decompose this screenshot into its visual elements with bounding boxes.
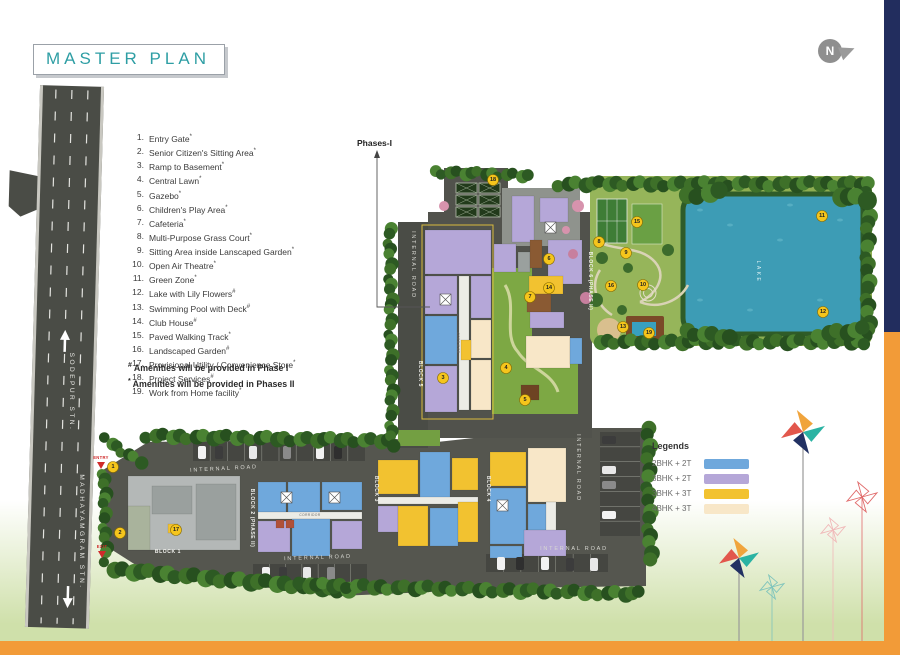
amenity-marker-3: 3 <box>438 373 449 384</box>
building-unit <box>494 244 516 272</box>
building-unit <box>530 312 564 328</box>
footnote: # Amenities will be provided in Phase I <box>128 359 294 375</box>
amenity-item: 4.Central Lawn* <box>128 173 358 187</box>
amenity-marker-1: 1 <box>108 462 119 473</box>
amenity-item: 10.Open Air Theatre* <box>128 258 358 272</box>
north-pointer-icon <box>838 42 857 61</box>
amenity-item: 8.Multi-Purpose Grass Court* <box>128 230 358 244</box>
legend-swatch <box>704 474 749 484</box>
building-unit <box>378 506 398 532</box>
lake-ripple <box>777 239 783 242</box>
parked-car <box>516 557 524 570</box>
amenity-marker-17: 17 <box>171 525 182 536</box>
amenity-item: 14.Club House# <box>128 315 358 329</box>
plan-label: EXIT <box>97 544 108 549</box>
svg-text:15: 15 <box>634 219 640 225</box>
svg-text:11: 11 <box>819 213 825 219</box>
legend-row: 3BHK + 3T <box>652 486 749 501</box>
amenity-marker-5: 5 <box>520 395 531 406</box>
tree <box>135 456 148 469</box>
blossom-tree <box>568 249 578 259</box>
building-unit <box>518 252 530 272</box>
plan-label: BLOCK 3 <box>373 476 379 502</box>
legend-swatch <box>704 504 749 514</box>
page-title: MASTER PLAN <box>46 49 210 68</box>
amenity-marker-19: 19 <box>644 328 655 339</box>
tree <box>858 338 870 350</box>
tree <box>632 585 645 598</box>
main-road <box>0 84 104 628</box>
building-unit <box>570 338 582 364</box>
compass-north: N <box>818 39 855 63</box>
lake-ripple <box>697 299 703 302</box>
svg-text:6: 6 <box>547 256 550 262</box>
svg-text:18: 18 <box>490 177 496 183</box>
entry-arrow <box>97 462 105 469</box>
blossom-tree <box>439 201 449 211</box>
pinwheel-icon <box>719 538 759 578</box>
tree <box>861 239 875 253</box>
amenity-item: 12.Lake with Lily Flowers# <box>128 286 358 300</box>
svg-text:2: 2 <box>118 530 121 536</box>
lake-ripple <box>837 219 843 222</box>
parked-car <box>602 481 616 489</box>
building-unit <box>196 484 236 540</box>
parked-car <box>215 446 223 459</box>
tree <box>99 512 111 524</box>
svg-text:13: 13 <box>620 324 626 330</box>
shrub <box>596 252 608 264</box>
building-unit <box>452 458 478 490</box>
amenity-marker-15: 15 <box>632 217 643 228</box>
plan-label: INTERNAL ROAD <box>575 434 581 502</box>
building-unit <box>512 196 534 242</box>
building-unit <box>458 502 478 542</box>
lake-ripple <box>787 204 793 207</box>
building-unit <box>286 520 294 528</box>
master-plan-title-box: MASTER PLAN <box>33 44 225 75</box>
lake-ripple <box>697 209 703 212</box>
building-unit <box>530 240 542 268</box>
blossom-tree <box>572 200 584 212</box>
building-unit <box>528 504 546 530</box>
shrub <box>662 244 674 256</box>
building-unit <box>430 508 458 546</box>
tree <box>861 281 875 295</box>
building-unit <box>420 452 450 500</box>
amenity-item: 7.Cafeteria* <box>128 216 358 230</box>
building-unit <box>471 320 491 358</box>
amenity-item: 13.Swimming Pool with Deck# <box>128 301 358 315</box>
tree <box>384 263 396 275</box>
tree <box>436 169 446 179</box>
plan-label: BLOCK 4 <box>485 476 491 502</box>
svg-text:3: 3 <box>441 375 444 381</box>
amenity-marker-2: 2 <box>115 528 126 539</box>
building-unit <box>471 360 491 410</box>
tree <box>858 191 877 210</box>
tree <box>643 552 657 566</box>
footnote: * Amenities will be provided in Phases I… <box>128 375 294 391</box>
tree <box>385 354 397 366</box>
tree <box>384 228 396 240</box>
pinwheel-icon <box>781 410 825 454</box>
plan-label: SODEPUR STN. <box>68 353 75 432</box>
parked-car <box>590 558 598 571</box>
amenity-marker-18: 18 <box>488 175 499 186</box>
shrub <box>617 305 627 315</box>
amenity-marker-10: 10 <box>638 280 649 291</box>
plan-label: CORRIDOR <box>456 332 460 354</box>
svg-text:10: 10 <box>640 282 646 288</box>
building-unit <box>332 521 362 549</box>
amenity-marker-14: 14 <box>544 283 555 294</box>
parked-car <box>602 511 616 519</box>
building-unit <box>378 460 418 494</box>
amenity-item: 15.Paved Walking Track* <box>128 329 358 343</box>
amenity-marker-16: 16 <box>606 281 617 292</box>
tree <box>722 329 738 345</box>
tree <box>385 319 397 331</box>
parked-car <box>283 446 291 459</box>
amenity-item: 5.Gazebo* <box>128 188 358 202</box>
parked-car <box>249 446 257 459</box>
building-unit <box>490 546 522 558</box>
svg-text:1: 1 <box>111 464 114 470</box>
unit-type-legend: Legends 2BHK + 2T3BHK + 2T3BHK + 3T4BHK … <box>652 441 749 516</box>
amenity-marker-9: 9 <box>621 248 632 259</box>
north-letter: N <box>826 44 835 58</box>
plan-label: CORRIDOR <box>299 513 321 517</box>
plan-label: BLOCK 1 <box>155 549 181 555</box>
parked-car <box>497 557 505 570</box>
amenity-item: 6.Children's Play Area* <box>128 202 358 216</box>
tree <box>385 410 397 422</box>
svg-text:9: 9 <box>624 250 627 256</box>
parked-car <box>602 436 616 444</box>
parked-car <box>541 557 549 570</box>
plan-label: BLOCK 6 (PHASE II) <box>587 252 593 311</box>
building-unit <box>322 482 362 510</box>
building-unit <box>398 506 428 546</box>
amenity-marker-4: 4 <box>501 363 512 374</box>
tree <box>616 180 628 192</box>
tree <box>387 439 400 452</box>
building-unit <box>528 448 566 502</box>
svg-text:12: 12 <box>820 309 826 315</box>
legend-row: 4BHK + 3T <box>652 501 749 516</box>
amenity-item: 1.Entry Gate* <box>128 131 358 145</box>
building-unit <box>425 316 457 364</box>
parked-car <box>566 558 574 571</box>
legend-swatch <box>704 459 749 469</box>
lake-ripple <box>727 224 733 227</box>
north-icon: N <box>818 39 842 63</box>
parked-car <box>327 567 335 580</box>
parked-car <box>602 466 616 474</box>
building-unit <box>540 198 568 222</box>
tree <box>99 557 109 567</box>
building-unit <box>425 230 491 274</box>
lake-ripple <box>817 299 823 302</box>
building-unit <box>258 521 290 552</box>
lake-ripple <box>747 309 753 312</box>
tree <box>855 320 870 335</box>
svg-text:7: 7 <box>528 294 531 300</box>
amenity-item: 9.Sitting Area inside Lanscaped Garden* <box>128 244 358 258</box>
phase-label: Phases-I <box>357 138 392 148</box>
plan-label: LAKE <box>755 261 761 284</box>
svg-text:19: 19 <box>646 330 652 336</box>
frame-navy-bar <box>884 0 900 332</box>
blossom-tree <box>562 226 570 234</box>
amenity-item: 11.Green Zone* <box>128 272 358 286</box>
svg-text:14: 14 <box>546 285 553 291</box>
amenity-marker-7: 7 <box>525 292 536 303</box>
plan-label: BLOCK 5 <box>417 361 423 387</box>
plan-label: MADHAYAMGRAM STN. <box>78 474 85 589</box>
plan-label: ENTRY <box>93 455 109 460</box>
plan-label: INTERNAL ROAD <box>410 231 416 299</box>
legend-title: Legends <box>652 441 749 451</box>
amenities-footnotes: # Amenities will be provided in Phase I*… <box>128 359 294 392</box>
building-unit <box>152 486 192 514</box>
building-unit <box>471 276 491 318</box>
amenity-item: 3.Ramp to Basement* <box>128 159 358 173</box>
building-unit <box>526 336 570 368</box>
shrub <box>623 263 633 273</box>
frame-orange-right-bar <box>884 332 900 655</box>
building-unit <box>288 482 320 512</box>
legend-row: 2BHK + 2T <box>652 456 749 471</box>
svg-text:17: 17 <box>173 527 179 533</box>
building-unit <box>461 340 471 360</box>
building-unit <box>276 520 284 528</box>
svg-text:5: 5 <box>523 397 526 403</box>
plan-label: INTERNAL ROAD <box>540 546 608 552</box>
legend-swatch <box>704 489 749 499</box>
lake <box>683 194 863 334</box>
svg-text:8: 8 <box>597 239 600 245</box>
building-unit <box>128 506 150 550</box>
frame-orange-bottom-bar <box>0 641 900 655</box>
svg-text:16: 16 <box>608 283 614 289</box>
amenity-item: 2.Senior Citizen's Sitting Area* <box>128 145 358 159</box>
building-unit <box>490 452 526 486</box>
tree <box>522 169 534 181</box>
plan-label: BLOCK 2 (PHASE II) <box>249 489 255 548</box>
amenity-marker-13: 13 <box>618 322 629 333</box>
legend-row: 3BHK + 2T <box>652 471 749 486</box>
amenity-marker-12: 12 <box>818 307 829 318</box>
tree <box>710 182 727 199</box>
amenity-marker-6: 6 <box>544 254 555 265</box>
building-unit <box>292 519 330 556</box>
building-unit <box>490 488 526 544</box>
amenity-marker-11: 11 <box>817 211 828 222</box>
building-unit <box>524 530 566 556</box>
amenity-marker-8: 8 <box>594 237 605 248</box>
amenity-item: 16.Landscaped Garden# <box>128 343 358 357</box>
parked-car <box>198 446 206 459</box>
garden-plots <box>398 430 440 446</box>
